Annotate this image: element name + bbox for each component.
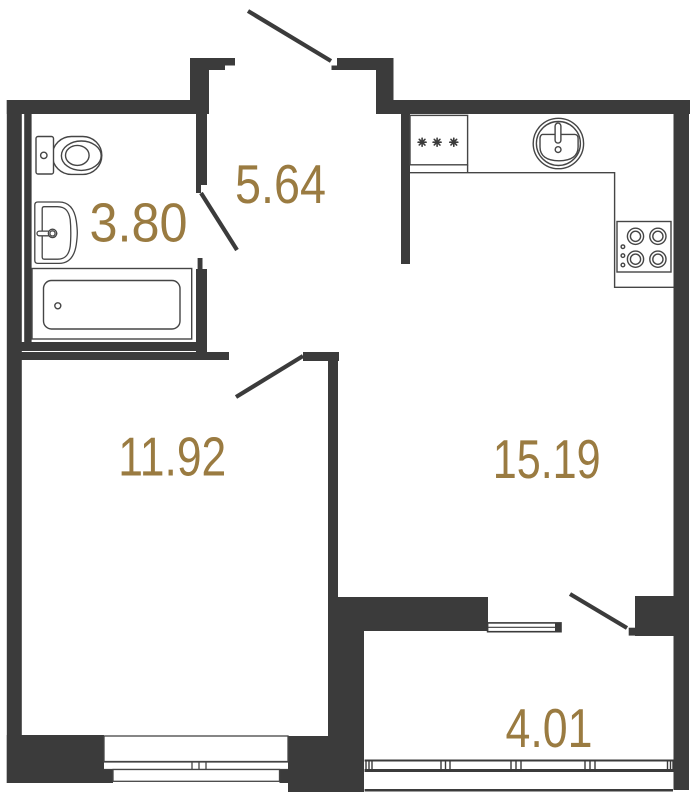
svg-text:11.92: 11.92: [118, 426, 226, 488]
svg-text:4.01: 4.01: [506, 697, 593, 759]
svg-text:3.80: 3.80: [90, 192, 188, 254]
svg-text:15.19: 15.19: [493, 428, 601, 490]
svg-text:5.64: 5.64: [235, 153, 326, 215]
